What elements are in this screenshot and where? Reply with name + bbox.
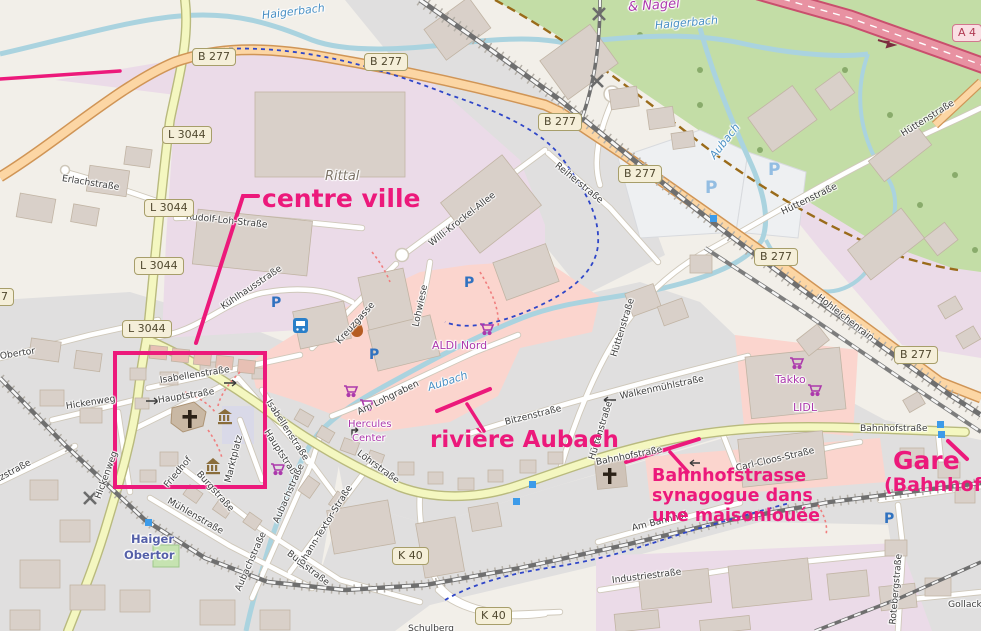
road-badge-b277-1: B 277 (192, 48, 236, 66)
shop-label-aldi-nord: ALDI Nord (432, 340, 487, 351)
road-badge-l3044-1: L 3044 (162, 126, 212, 144)
annotation-riviere-aubach: rivière Aubach (430, 428, 619, 452)
street-label-bahnhofstrasse-east: Bahnhofstraße (860, 424, 928, 433)
parking-icon-3: P (464, 276, 474, 290)
street-label-schulberg: Schulberg (408, 624, 454, 631)
road-badge-l3044-2: L 3044 (144, 199, 194, 217)
annotation-synagogue-line3: une maisonlouée (652, 507, 820, 525)
roundabout (396, 249, 409, 262)
road-badge-l3044-3: L 3044 (134, 257, 184, 275)
annotation-gare: Gare (893, 448, 960, 474)
street-label-gollacke-partial: Gollacke (948, 600, 981, 609)
road-badge-b277-partial: B 277 (0, 288, 14, 306)
road-badge-b277-5: B 277 (754, 248, 798, 266)
road-badge-b277-4: B 277 (618, 165, 662, 183)
shop-label-lidl: LIDL (793, 402, 817, 413)
parking-icon-1: P (271, 296, 281, 310)
road-badge-a4: A 4 (952, 24, 981, 42)
company-label-nagel: & Nagel (628, 0, 681, 14)
parking-icon-5: P (705, 180, 717, 197)
road-badge-l3044-4: L 3044 (122, 320, 172, 338)
road-badge-b277-6: B 277 (894, 346, 938, 364)
road-badge-k40-2: K 40 (475, 607, 512, 625)
shop-label-hercules-line2: Center (352, 434, 386, 444)
road-badge-b277-2: B 277 (364, 53, 408, 71)
shop-label-hercules-line1: Hercules (348, 420, 392, 430)
road-badge-b277-3: B 277 (538, 113, 582, 131)
parking-icon-6: P (768, 162, 780, 179)
annotation-synagogue-line1: Bahnhofstrasse (652, 467, 806, 485)
osm-map-canvas[interactable]: Haigerbach Haigerbach Aubach Aubach Ritt… (0, 0, 981, 631)
annotation-synagogue-line2: synagogue dans (652, 487, 813, 505)
shop-label-takko: Takko (775, 374, 806, 385)
annotation-gare-sub: (Bahnhof) (884, 476, 981, 496)
road-badge-k40-1: K 40 (392, 547, 429, 565)
bus-icon (293, 318, 308, 333)
station-label-haiger: Haiger (131, 534, 174, 546)
annotation-centre-ville: centre ville (262, 186, 420, 212)
parking-icon-2: P (369, 348, 379, 362)
station-label-obertor: Obertor (124, 550, 175, 562)
parking-icon-4: P (884, 512, 894, 526)
area-label-rittal: Rittal (325, 170, 359, 183)
